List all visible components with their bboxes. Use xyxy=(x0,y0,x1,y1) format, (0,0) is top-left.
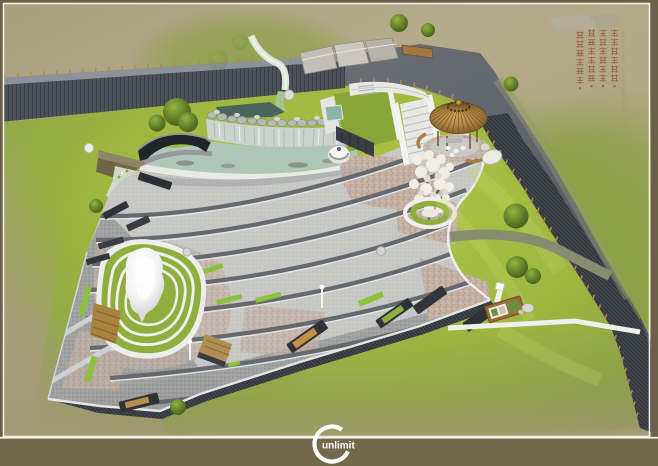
svg-text:unlimit: unlimit xyxy=(322,441,355,452)
svg-text:THE ENVIRONMENT LANDSCAPE DESI: THE ENVIRONMENT LANDSCAPE DESIGN OF THE … xyxy=(621,31,625,137)
